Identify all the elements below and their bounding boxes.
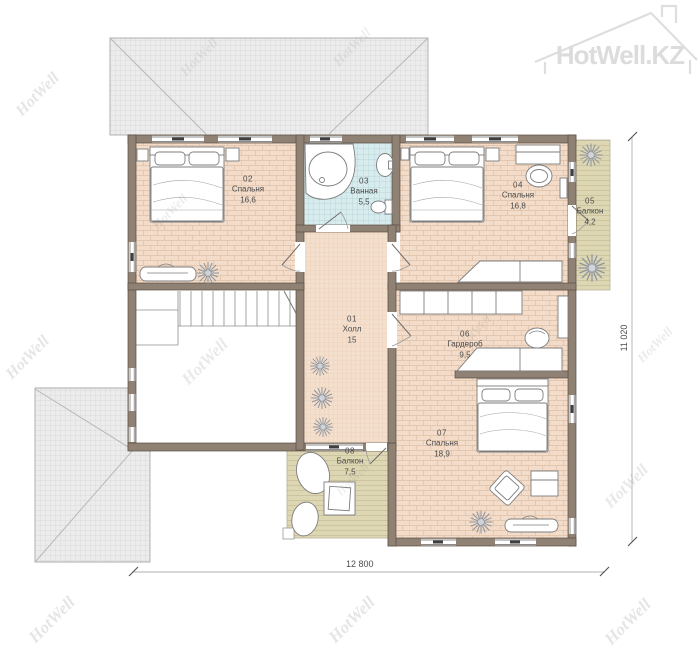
room-area: 9,5 — [447, 350, 482, 360]
room-label-bedroom-07: 07 Спальня 18,9 — [426, 428, 458, 459]
nightstand — [486, 148, 499, 161]
bench-room02 — [140, 264, 196, 281]
room-number: 08 — [337, 446, 364, 456]
bed-room07 — [477, 379, 548, 452]
room-area: 18,9 — [426, 449, 458, 459]
room-label-bedroom-02: 02 Спальня 16,6 — [232, 174, 264, 205]
room-number: 01 — [343, 314, 362, 324]
room-name: Балкон — [577, 207, 604, 217]
nightstand — [137, 149, 148, 161]
room-area: 5,5 — [350, 197, 377, 207]
room-name: Ванная — [350, 187, 377, 197]
room-number: 07 — [426, 428, 458, 438]
room-area: 16,8 — [502, 201, 534, 211]
radiator — [560, 178, 567, 198]
room-label-bedroom-04: 04 Спальня 16,8 — [502, 180, 534, 211]
room-number: 05 — [577, 196, 604, 206]
dimension-height-label: 11 020 — [619, 325, 629, 352]
room-name: Холл — [343, 325, 362, 335]
room-number: 02 — [232, 174, 264, 184]
roof-top — [110, 38, 428, 135]
wardrobe-side-shelf — [558, 296, 568, 338]
room-area: 15 — [343, 335, 362, 345]
dimension-width-label: 12 800 — [346, 559, 374, 569]
balcony-08-post — [283, 528, 294, 539]
room-area: 16,6 — [232, 195, 264, 205]
room-label-hall: 01 Холл 15 — [343, 314, 362, 345]
brand-logo: HotWell.KZ — [537, 40, 700, 71]
side-table-room07 — [531, 471, 558, 496]
room-number: 06 — [447, 329, 482, 339]
room-area: 4,2 — [577, 217, 604, 227]
floor-plan-page: HotWell HotWell HotWell HotWell HotWell … — [0, 0, 700, 664]
room-name: Балкон — [337, 457, 364, 467]
wardrobe-partition-wall — [455, 371, 568, 378]
room-label-bathroom: 03 Ванная 5,5 — [350, 176, 377, 207]
room-label-balcony-08: 08 Балкон 7,5 — [337, 446, 364, 477]
stairs-room-floor — [135, 290, 296, 443]
room-area: 7,5 — [337, 467, 364, 477]
bed-room04 — [410, 147, 484, 222]
room-label-balcony-05: 05 Балкон 4,2 — [577, 196, 604, 227]
room-name: Спальня — [502, 191, 534, 201]
room-number: 03 — [350, 176, 377, 186]
sink — [377, 154, 394, 177]
room-name: Гардероб — [447, 340, 482, 350]
nightstand — [401, 148, 409, 160]
room-name: Спальня — [426, 439, 458, 449]
wardrobe-shelves — [400, 291, 522, 314]
room-name: Спальня — [232, 185, 264, 195]
nightstand — [226, 148, 239, 161]
room-number: 04 — [502, 180, 534, 190]
room-label-wardrobe: 06 Гардероб 9,5 — [447, 329, 482, 360]
chair-room06 — [525, 328, 549, 348]
